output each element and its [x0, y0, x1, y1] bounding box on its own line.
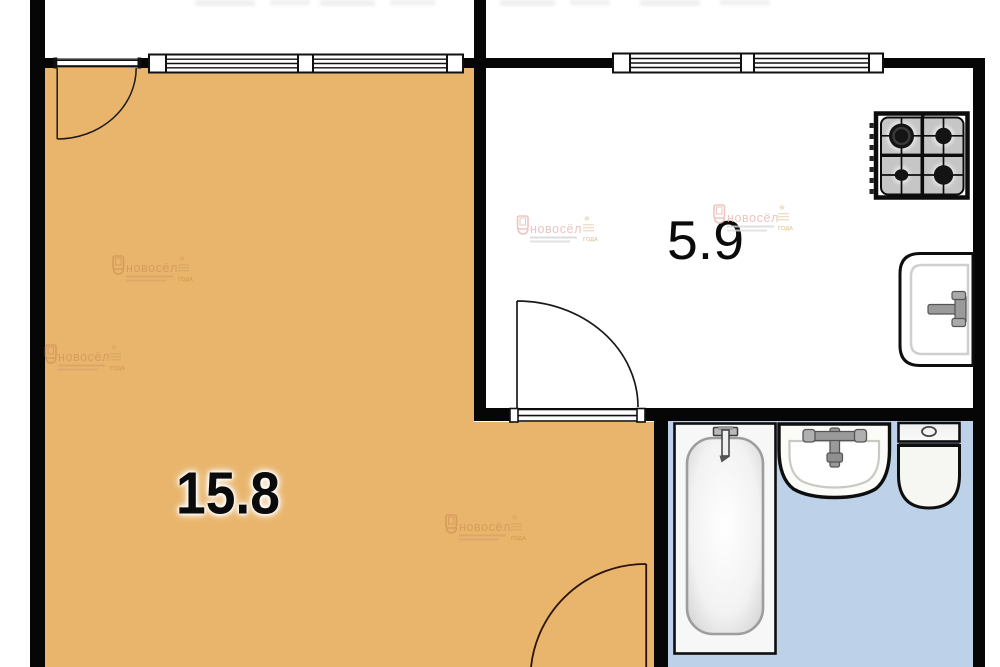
- svg-text:ГОДА: ГОДА: [178, 277, 193, 283]
- svg-text:новосёл: новосёл: [530, 222, 582, 236]
- svg-text:ГОДА: ГОДА: [778, 226, 793, 232]
- svg-text:новосёл: новосёл: [126, 261, 178, 275]
- svg-text:❋: ❋: [179, 255, 185, 263]
- svg-text:новосёл: новосёл: [727, 211, 779, 225]
- svg-text:❋: ❋: [779, 204, 785, 212]
- svg-text:новосёл: новосёл: [459, 520, 511, 534]
- svg-text:ГОДА: ГОДА: [511, 536, 526, 542]
- svg-text:❋: ❋: [512, 514, 518, 522]
- svg-text:ГОДА: ГОДА: [583, 237, 598, 243]
- svg-text:❋: ❋: [111, 344, 117, 352]
- svg-text:новосёл: новосёл: [58, 350, 110, 364]
- svg-text:15.8: 15.8: [176, 460, 280, 527]
- svg-text:❋: ❋: [584, 215, 590, 223]
- svg-text:ГОДА: ГОДА: [110, 366, 125, 372]
